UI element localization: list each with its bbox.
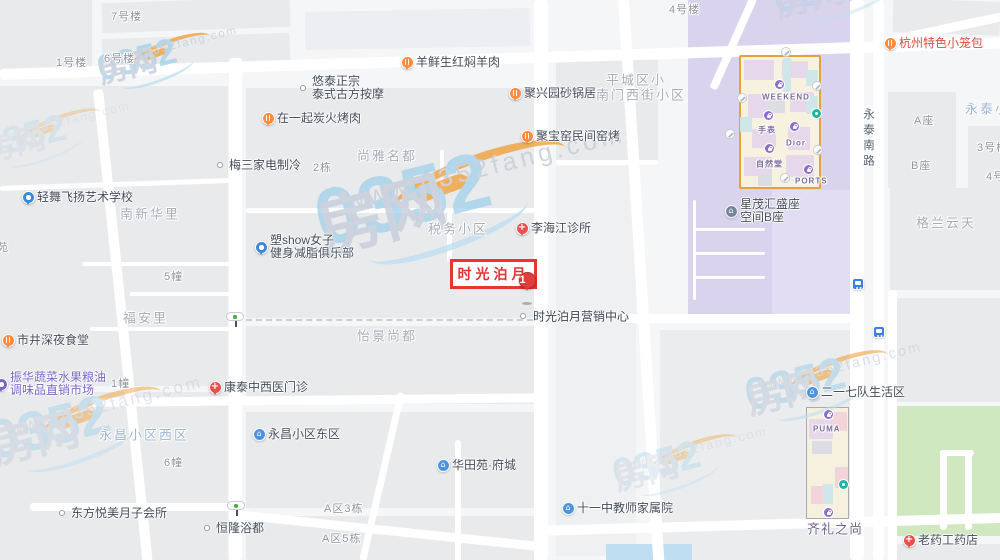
building-number-label: 6幢 bbox=[164, 454, 183, 470]
education-pin-icon bbox=[22, 191, 35, 204]
road bbox=[873, 0, 884, 560]
poi-label: 十一中教师家属院 bbox=[577, 502, 673, 515]
map-canvas[interactable]: 时光泊月 1 时光泊月营销中心 永泰南路 WEEKEND手表Dior自然堂POR… bbox=[0, 0, 1000, 560]
poi-label: 聚宝窑民间窑烤 bbox=[536, 130, 620, 143]
road bbox=[620, 314, 860, 323]
restaurant-pin-icon bbox=[521, 130, 534, 143]
area-label: 税务小区 bbox=[428, 219, 488, 238]
area-label: 齐礼之尚 bbox=[807, 519, 863, 538]
poi-label: 李海江诊所 bbox=[531, 222, 591, 235]
building-number-label: A区5栋 bbox=[322, 530, 361, 546]
poi-label: 老药工药店 bbox=[918, 534, 978, 547]
road bbox=[693, 252, 765, 255]
building-number-label: 3号楼 bbox=[977, 139, 1000, 155]
poi-label: 恒隆浴都 bbox=[216, 522, 264, 535]
poi-label: 轻舞飞扬艺术学校 bbox=[37, 191, 133, 204]
restaurant-pin-icon bbox=[509, 87, 522, 100]
bus-stop-icon[interactable] bbox=[873, 326, 885, 338]
poi-label: 东方悦美月子会所 bbox=[71, 507, 167, 520]
road bbox=[556, 160, 658, 165]
poi-label: 塑show女子健身减脂俱乐部 bbox=[270, 234, 354, 260]
building-number-label: 苑 bbox=[0, 239, 9, 255]
poi-label: 市井深夜食堂 bbox=[17, 334, 89, 347]
building-number-label: A座 bbox=[914, 112, 934, 128]
community-icon-icon bbox=[806, 386, 819, 399]
marker-shadow bbox=[522, 302, 532, 305]
medical-pin-icon bbox=[209, 381, 222, 394]
road bbox=[940, 450, 947, 530]
poi-label-line: 恒隆浴都 bbox=[216, 522, 264, 535]
poi-label: 振华蔬菜水果粮油调味品直销市场 bbox=[10, 371, 106, 397]
dot-icon bbox=[217, 162, 223, 168]
road bbox=[229, 58, 242, 560]
poi-label: 永昌小区东区 bbox=[268, 428, 340, 441]
road bbox=[888, 290, 897, 560]
building-number-label: 5幢 bbox=[164, 268, 183, 284]
marker-caption: 时光泊月营销中心 bbox=[533, 308, 629, 325]
education-pin-icon bbox=[255, 241, 268, 254]
building-number-label: A区3栋 bbox=[324, 500, 363, 516]
poi-label-line: 健身减脂俱乐部 bbox=[270, 247, 354, 260]
mall-room bbox=[740, 117, 752, 132]
dotted-lane-line bbox=[246, 319, 533, 321]
store-label: Dior bbox=[786, 139, 806, 148]
road bbox=[246, 208, 536, 213]
poi-label: 在一起炭火烤肉 bbox=[277, 112, 361, 125]
area-label: 南新华里 bbox=[120, 204, 180, 223]
poi-label-line: 康泰中西医门诊 bbox=[224, 381, 308, 394]
poi-label-line: 梅三家电制冷 bbox=[229, 159, 301, 172]
poi-label-line: 调味品直销市场 bbox=[10, 384, 106, 397]
poi-label-line: 在一起炭火烤肉 bbox=[277, 112, 361, 125]
traffic-light-icon bbox=[226, 312, 244, 321]
poi-label: 羊鲜生红焖羊肉 bbox=[416, 56, 500, 69]
area-label: 永昌小区西区 bbox=[99, 425, 189, 444]
building-number-label: 4号楼 bbox=[669, 1, 700, 17]
store-label: PORTS bbox=[795, 177, 828, 186]
exit-icon bbox=[811, 108, 822, 119]
road bbox=[82, 262, 230, 266]
bus-stop-icon[interactable] bbox=[852, 278, 864, 290]
dot-icon bbox=[204, 525, 210, 531]
escalator-icon bbox=[780, 173, 790, 183]
poi-label-line: 空间B座 bbox=[740, 211, 800, 224]
road bbox=[693, 200, 696, 300]
building-number-label: 7号楼 bbox=[111, 8, 142, 24]
city-block bbox=[0, 392, 228, 560]
shopping-bag-icon bbox=[803, 164, 814, 175]
exit-icon bbox=[838, 479, 849, 490]
poi-label: 梅三家电制冷 bbox=[229, 159, 301, 172]
restaurant-pin-icon bbox=[262, 112, 275, 125]
poi-label-line: 二一七队生活区 bbox=[821, 386, 905, 399]
poi-label-line: 聚兴园砂锅居 bbox=[524, 87, 596, 100]
escalator-icon bbox=[781, 47, 791, 57]
poi-label-line: 李海江诊所 bbox=[531, 222, 591, 235]
shopping-bag-icon bbox=[823, 507, 834, 518]
traffic-light-icon bbox=[227, 501, 245, 510]
poi-label-line: 永昌小区东区 bbox=[268, 428, 340, 441]
city-block bbox=[890, 188, 1000, 290]
poi-label: 星茂汇盛座空间B座 bbox=[740, 198, 800, 224]
poi-label: 聚兴园砂锅居 bbox=[524, 87, 596, 100]
mall-room bbox=[758, 174, 772, 186]
store-label: WEEKEND bbox=[762, 93, 810, 102]
escalator-icon bbox=[725, 129, 735, 139]
mall-room bbox=[812, 441, 832, 454]
area-label: 南门西街小区 bbox=[596, 85, 686, 104]
store-label: 手表 bbox=[758, 125, 776, 136]
poi-label: 康泰中西医门诊 bbox=[224, 381, 308, 394]
road bbox=[90, 327, 230, 331]
area-label: 格兰云天 bbox=[916, 213, 976, 232]
poi-label: 二一七队生活区 bbox=[821, 386, 905, 399]
building-number-label: 4号 bbox=[986, 168, 1000, 184]
store-label: 自然堂 bbox=[756, 159, 783, 170]
poi-label: 悠泰正宗泰式古方按摩 bbox=[312, 75, 384, 101]
city-block bbox=[888, 92, 956, 188]
building-number-label: 2栋 bbox=[313, 159, 332, 175]
building-number-label: 1幢 bbox=[111, 375, 130, 391]
escalator-icon bbox=[813, 145, 823, 155]
poi-label: 杭州特色小笼包 bbox=[899, 37, 983, 50]
shopping-bag-icon bbox=[823, 409, 834, 420]
building-number-label: 1号楼 bbox=[56, 54, 87, 70]
building-number-label: B座 bbox=[911, 157, 931, 173]
restaurant-pin-icon bbox=[884, 37, 897, 50]
community-icon-icon bbox=[253, 428, 266, 441]
restaurant-pin-icon bbox=[401, 56, 414, 69]
area-label: 尚雅名都 bbox=[357, 146, 417, 165]
city-block bbox=[890, 298, 1000, 402]
marker-number: 1 bbox=[520, 273, 526, 288]
shopping-bag-icon bbox=[774, 79, 785, 90]
road bbox=[693, 228, 765, 231]
area-label: 福安里 bbox=[123, 308, 168, 327]
poi-label-line: 聚宝窑民间窑烤 bbox=[536, 130, 620, 143]
dot-icon bbox=[59, 510, 65, 516]
poi-label-line: 杭州特色小笼包 bbox=[899, 37, 983, 50]
market-pin-icon bbox=[0, 378, 8, 391]
community-icon-icon bbox=[437, 459, 450, 472]
area-label: 永泰小 bbox=[965, 99, 1000, 118]
road bbox=[130, 292, 230, 296]
escalator-icon bbox=[737, 93, 747, 103]
area-label: 怡景尚都 bbox=[357, 326, 417, 345]
poi-label-line: 泰式古方按摩 bbox=[312, 88, 384, 101]
city-block bbox=[305, 8, 531, 50]
shopping-bag-icon bbox=[763, 110, 774, 121]
poi-label: 华田苑·府城 bbox=[452, 459, 516, 472]
poi-label-line: 华田苑·府城 bbox=[452, 459, 516, 472]
poi-label-line: 轻舞飞扬艺术学校 bbox=[37, 191, 133, 204]
poi-label-line: 老药工药店 bbox=[918, 534, 978, 547]
building-number-label: 6号楼 bbox=[104, 50, 135, 66]
shopping-bag-icon bbox=[789, 121, 800, 132]
water-block bbox=[606, 544, 692, 560]
store-label: PUMA bbox=[813, 425, 841, 434]
location-marker[interactable]: 1 bbox=[519, 272, 536, 289]
poi-dot-icon bbox=[520, 313, 526, 319]
poi-label-line: 市井深夜食堂 bbox=[17, 334, 89, 347]
road bbox=[693, 276, 765, 279]
shopping-bag-icon bbox=[764, 143, 775, 154]
road-name-label: 永泰南路 bbox=[860, 108, 876, 170]
community-icon-icon bbox=[562, 502, 575, 515]
road bbox=[940, 450, 974, 456]
road bbox=[965, 450, 972, 530]
poi-label-line: 羊鲜生红焖羊肉 bbox=[416, 56, 500, 69]
poi-label-line: 十一中教师家属院 bbox=[577, 502, 673, 515]
medical-pin-icon bbox=[516, 222, 529, 235]
restaurant-pin-icon bbox=[2, 334, 15, 347]
mall-room bbox=[823, 484, 833, 504]
dot-icon bbox=[300, 85, 306, 91]
road bbox=[440, 150, 444, 212]
escalator-icon bbox=[812, 81, 822, 91]
medical-pin-icon bbox=[903, 534, 916, 547]
building-icon-icon bbox=[725, 205, 738, 218]
poi-label-line: 东方悦美月子会所 bbox=[71, 507, 167, 520]
mall-room bbox=[744, 60, 774, 80]
